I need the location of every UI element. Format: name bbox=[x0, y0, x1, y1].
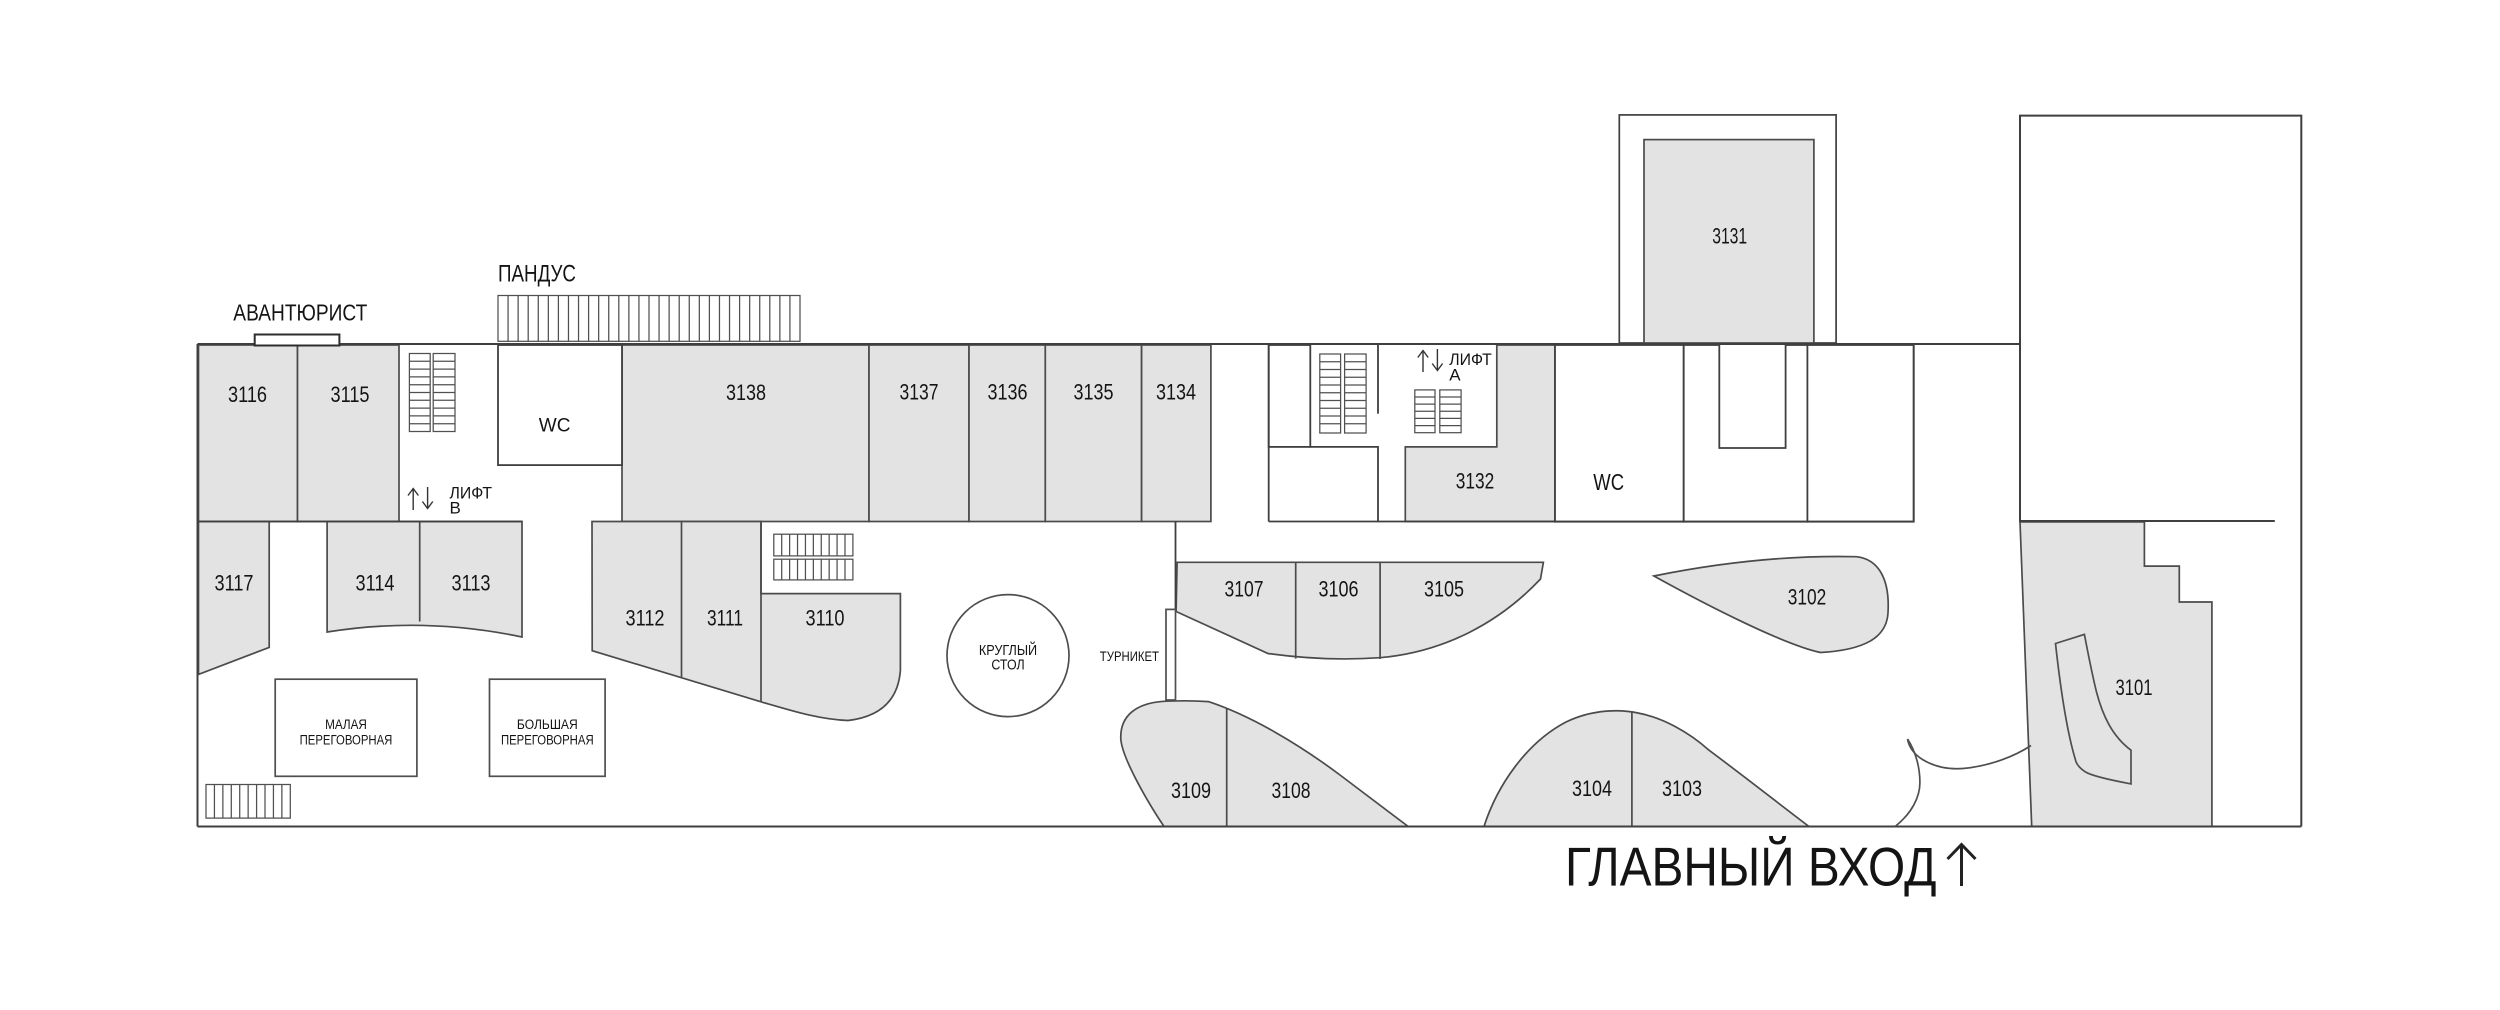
svg-text:3102: 3102 bbox=[1788, 585, 1827, 610]
svg-text:3135: 3135 bbox=[1074, 380, 1114, 405]
svg-text:МАЛАЯ: МАЛАЯ bbox=[325, 717, 367, 732]
svg-text:3112: 3112 bbox=[626, 606, 665, 631]
svg-text:3114: 3114 bbox=[356, 571, 395, 596]
svg-text:3109: 3109 bbox=[1171, 778, 1211, 803]
svg-text:3107: 3107 bbox=[1225, 577, 1264, 602]
svg-text:БОЛЬШАЯ: БОЛЬШАЯ bbox=[517, 717, 578, 732]
svg-text:А: А bbox=[1449, 365, 1461, 384]
svg-text:3132: 3132 bbox=[1456, 469, 1495, 494]
svg-text:3106: 3106 bbox=[1319, 577, 1359, 602]
svg-text:3103: 3103 bbox=[1662, 776, 1702, 801]
svg-text:WC: WC bbox=[1593, 469, 1624, 495]
svg-text:3117: 3117 bbox=[215, 571, 254, 596]
svg-text:ПЕРЕГОВОРНАЯ: ПЕРЕГОВОРНАЯ bbox=[300, 732, 393, 747]
svg-text:3104: 3104 bbox=[1572, 776, 1612, 801]
svg-text:3111: 3111 bbox=[707, 606, 743, 631]
svg-text:ПЕРЕГОВОРНАЯ: ПЕРЕГОВОРНАЯ bbox=[501, 732, 594, 747]
svg-text:3110: 3110 bbox=[806, 606, 845, 631]
svg-text:ТУРНИКЕТ: ТУРНИКЕТ bbox=[1100, 648, 1160, 664]
svg-text:3113: 3113 bbox=[452, 571, 491, 596]
svg-text:АВАНТЮРИСТ: АВАНТЮРИСТ bbox=[233, 299, 367, 325]
svg-text:ПАНДУС: ПАНДУС bbox=[498, 261, 576, 288]
svg-text:3115: 3115 bbox=[331, 382, 370, 407]
svg-text:3137: 3137 bbox=[900, 380, 939, 405]
svg-text:3131: 3131 bbox=[1712, 224, 1747, 249]
svg-text:3138: 3138 bbox=[726, 380, 766, 405]
svg-text:3136: 3136 bbox=[988, 380, 1028, 405]
svg-text:ГЛАВНЫЙ ВХОД: ГЛАВНЫЙ ВХОД bbox=[1565, 835, 1937, 898]
svg-text:3134: 3134 bbox=[1156, 380, 1196, 405]
svg-text:3108: 3108 bbox=[1272, 778, 1311, 803]
svg-text:СТОЛ: СТОЛ bbox=[991, 657, 1024, 674]
svg-text:В: В bbox=[450, 498, 461, 517]
svg-text:3116: 3116 bbox=[228, 382, 267, 407]
svg-text:WC: WC bbox=[539, 416, 571, 437]
svg-text:3101: 3101 bbox=[2116, 675, 2153, 700]
svg-text:3105: 3105 bbox=[1424, 577, 1464, 602]
